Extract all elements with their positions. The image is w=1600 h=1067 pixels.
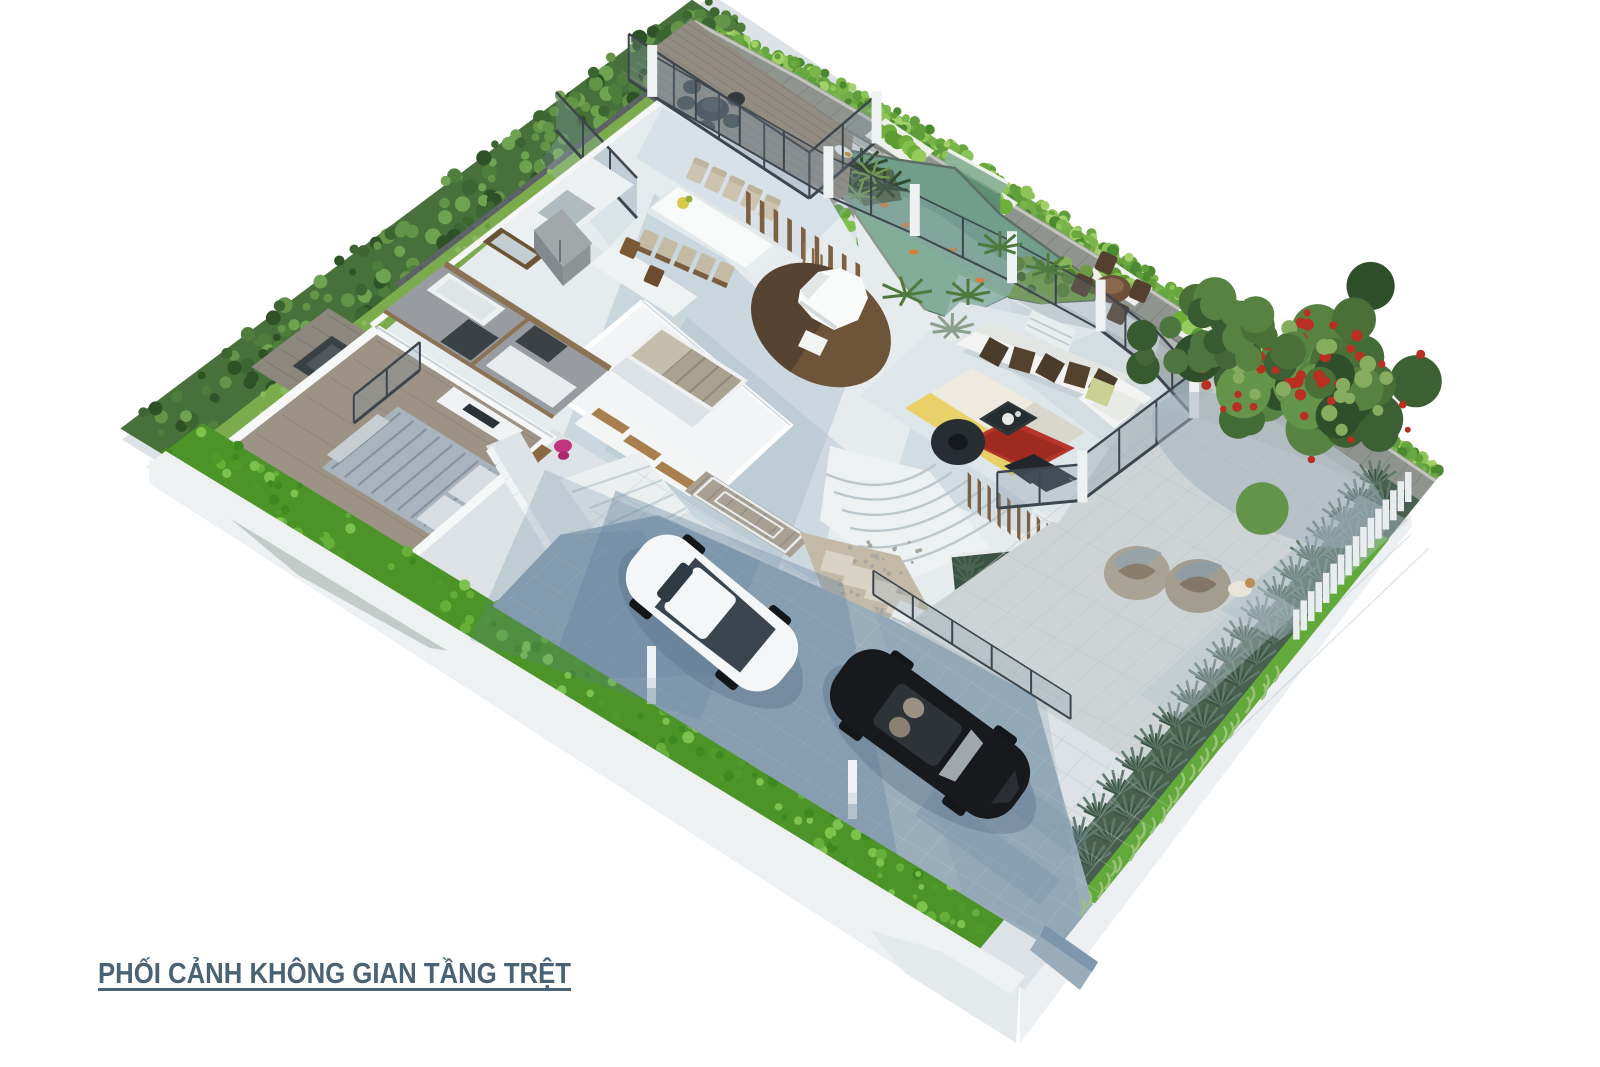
svg-text:PHỐI CẢNH KHÔNG GIAN TẦNG TRỆT: PHỐI CẢNH KHÔNG GIAN TẦNG TRỆT (98, 957, 572, 990)
